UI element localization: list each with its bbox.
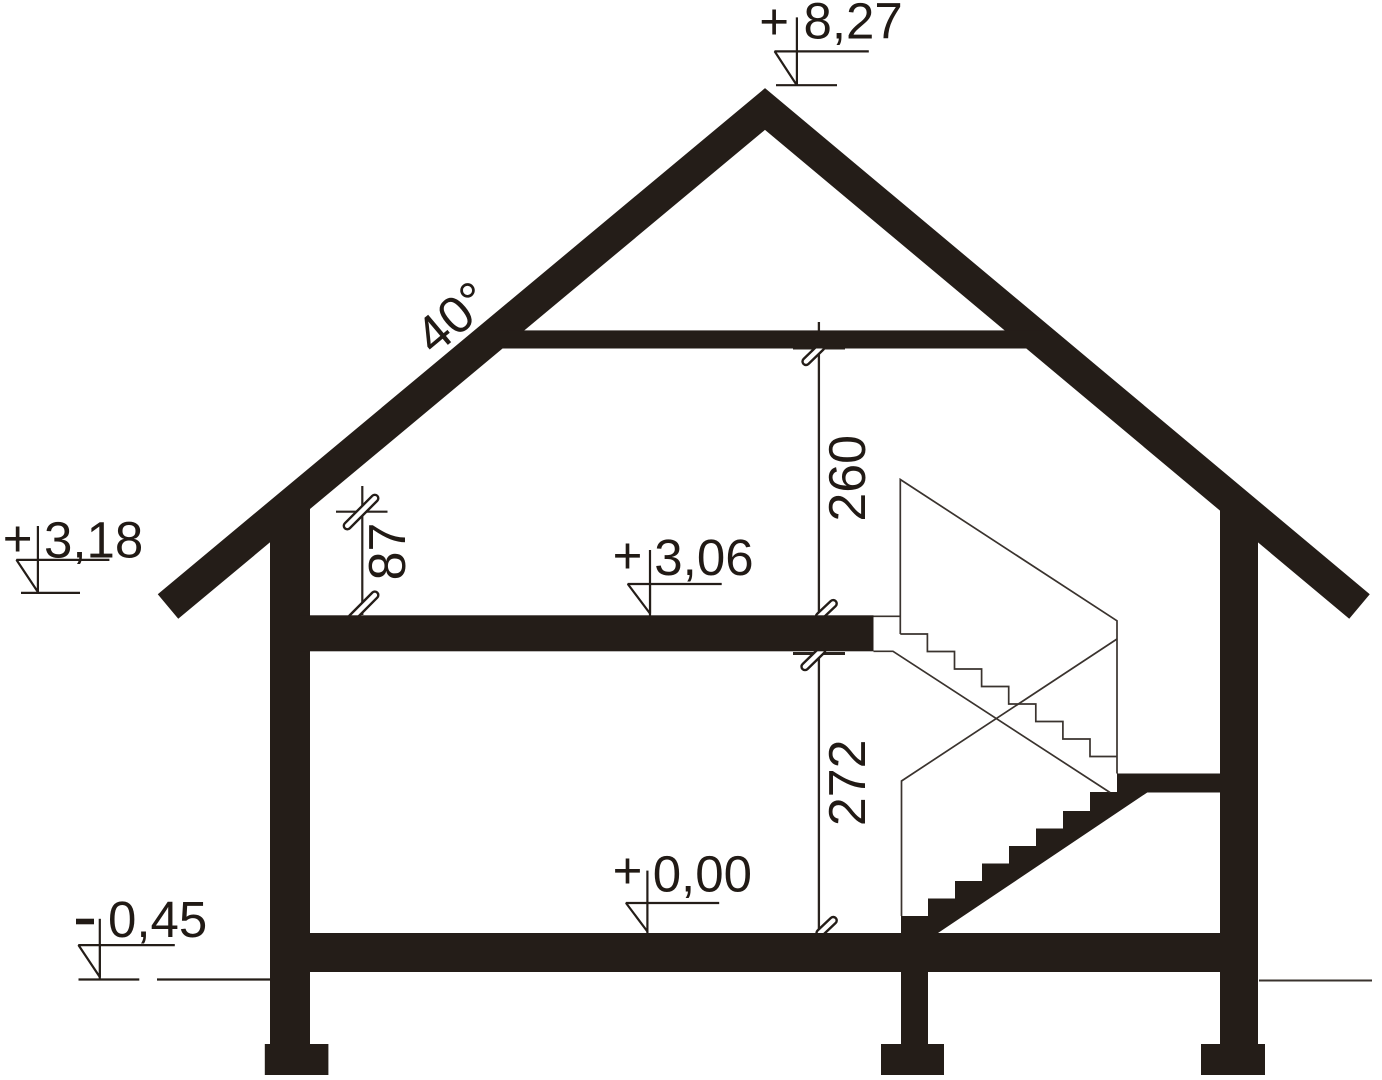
svg-text:8,27: 8,27 [804, 0, 903, 50]
svg-text:+: + [3, 510, 33, 567]
svg-text:+: + [613, 842, 643, 899]
svg-text:3,06: 3,06 [654, 529, 753, 586]
svg-text:+: + [759, 0, 789, 50]
svg-text:272: 272 [819, 739, 877, 826]
svg-text:+: + [613, 527, 643, 584]
svg-text:3,18: 3,18 [44, 511, 143, 568]
svg-text:87: 87 [359, 523, 417, 581]
svg-text:0,45: 0,45 [108, 891, 207, 948]
svg-text:0,00: 0,00 [653, 846, 752, 903]
svg-text:260: 260 [819, 435, 877, 522]
